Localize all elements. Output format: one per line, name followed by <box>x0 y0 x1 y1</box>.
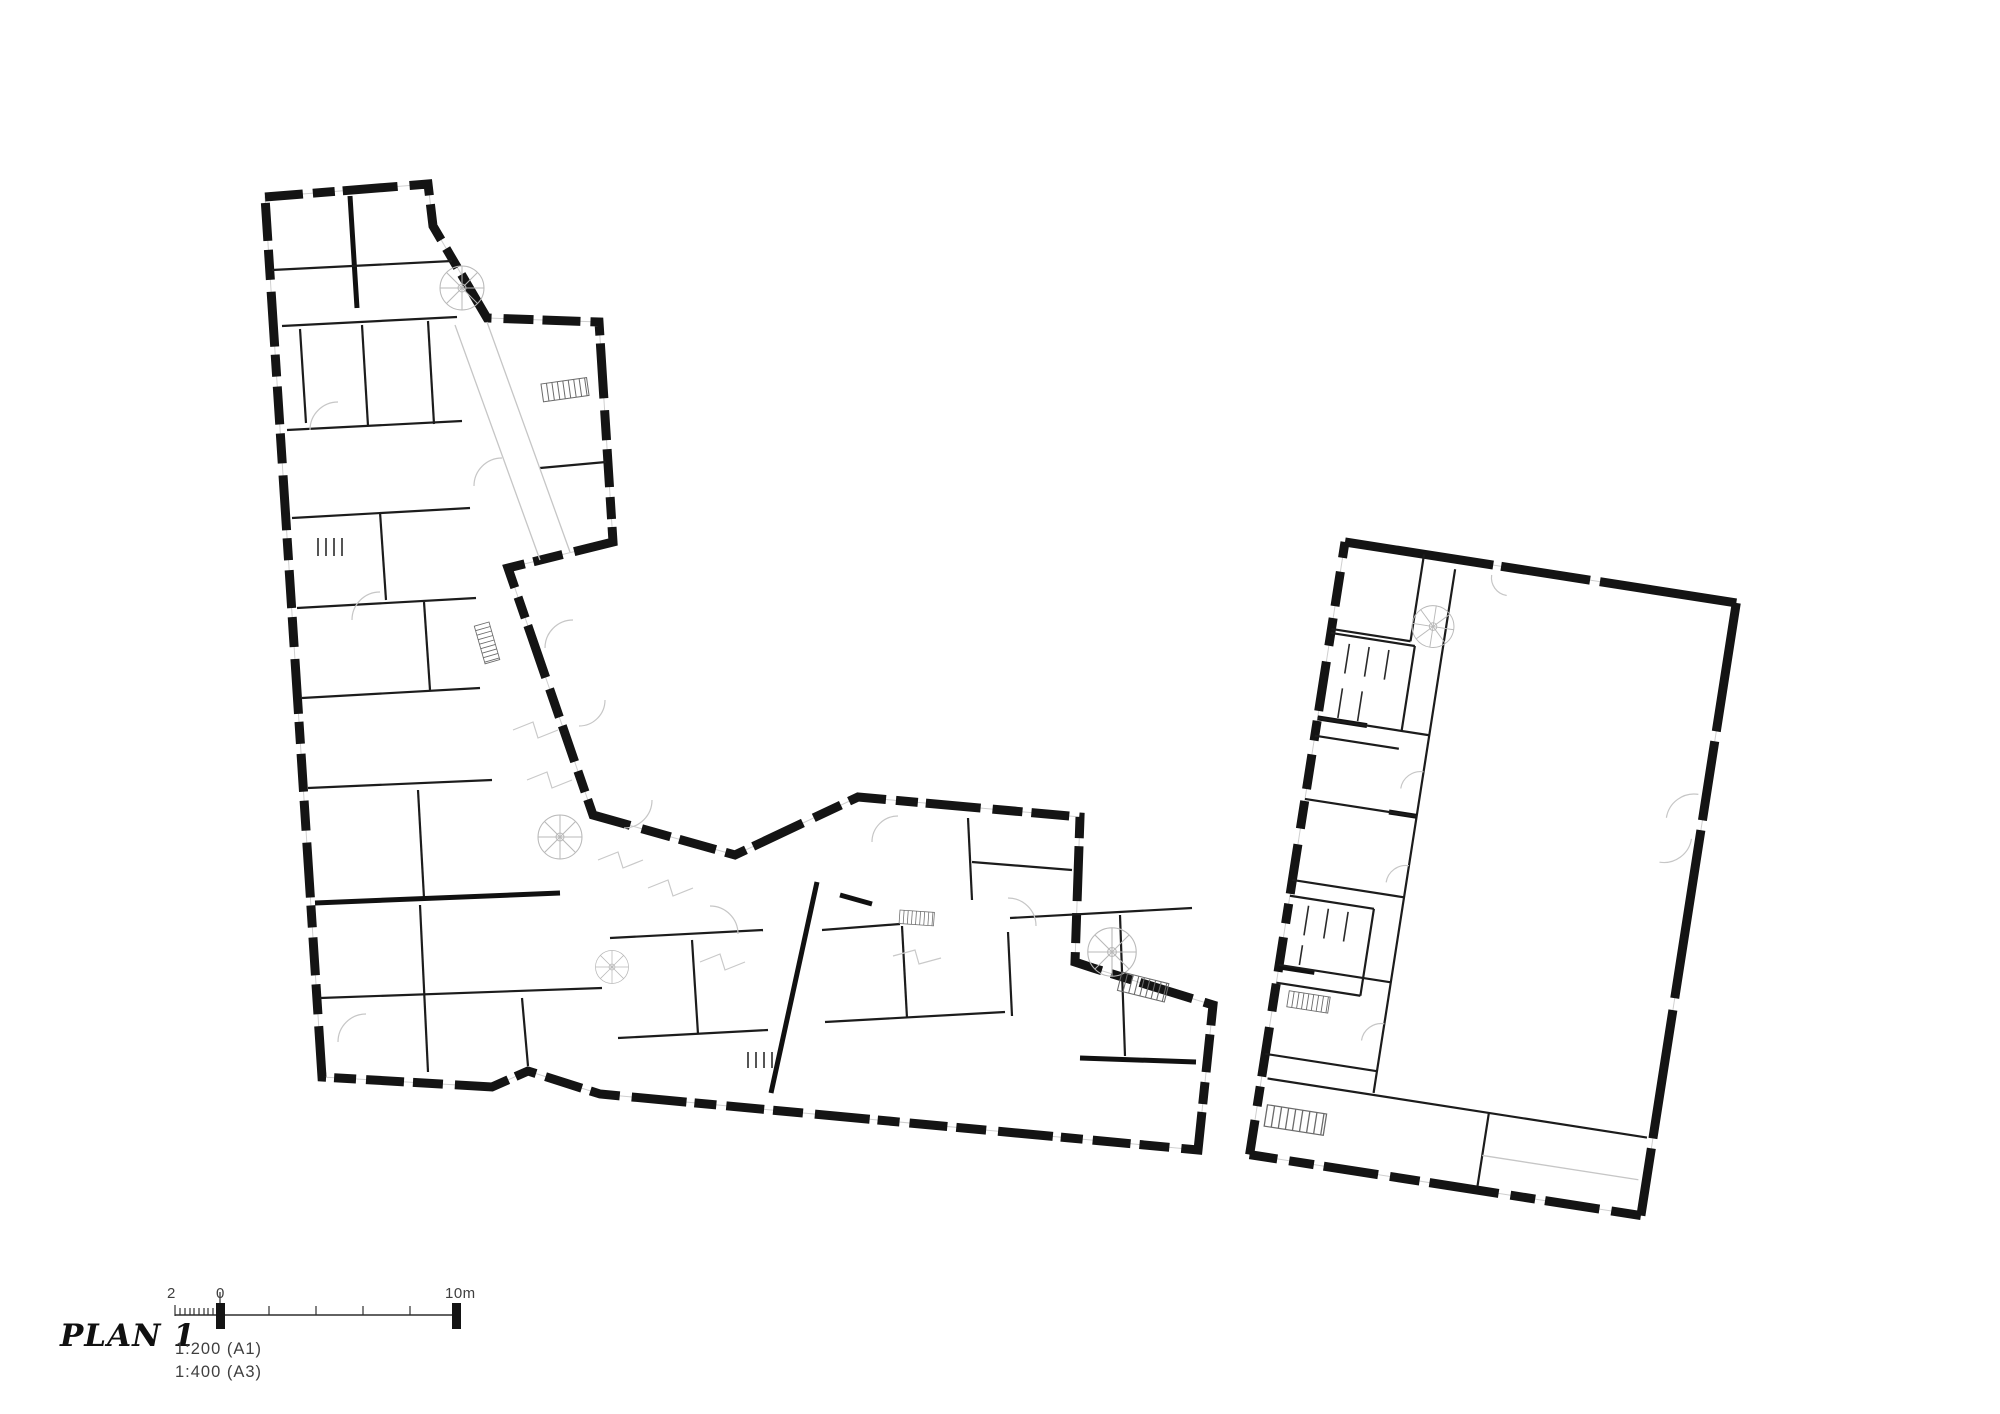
scale-bar-zero-block <box>216 1303 225 1329</box>
building-west-footprint <box>265 184 1213 1150</box>
scale-ratio-a1: 1:200 (A1) <box>175 1340 262 1358</box>
building-west <box>265 184 1213 1150</box>
building-east <box>1250 542 1737 1216</box>
scale-label-10m: 10m <box>445 1285 476 1302</box>
scale-ratio-a3: 1:400 (A3) <box>175 1363 262 1381</box>
floor-plan-drawing: PLAN 1 2 0 10m 1:200 (A1) 1:400 (A3) <box>0 0 2000 1414</box>
titleblock: PLAN 1 2 0 10m 1:200 (A1) 1:400 (A3) <box>59 1285 476 1381</box>
scale-bar: 2 0 10m <box>167 1285 476 1329</box>
scale-bar-end-block <box>452 1303 461 1329</box>
scale-label-0: 0 <box>216 1285 225 1302</box>
plan-sheet: PLAN 1 2 0 10m 1:200 (A1) 1:400 (A3) <box>0 0 2000 1414</box>
scale-label-2: 2 <box>167 1285 176 1302</box>
